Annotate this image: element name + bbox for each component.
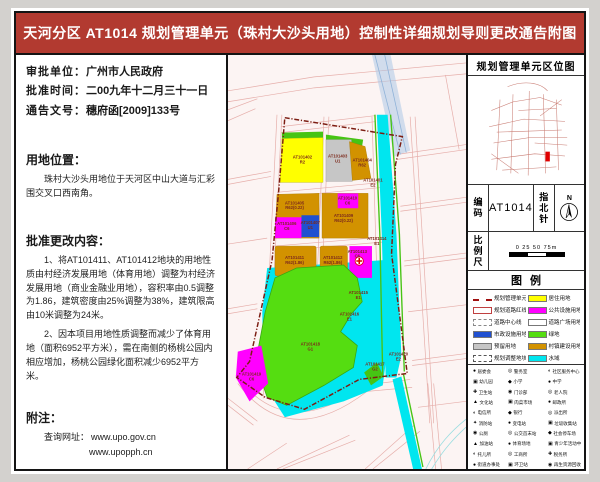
notes-heading: 附注： xyxy=(26,409,216,426)
location-block: 用地位置： 珠村大沙头用地位于天河区中山大道与汇彩围交叉口西南角。 xyxy=(26,151,216,206)
facility-legend-item: ● 中学 xyxy=(548,378,581,386)
facility-icon: ● xyxy=(473,463,476,468)
changes-paragraphs: 1、将AT101411、AT101412地块的用地性质由村经济发展用地（体育用地… xyxy=(26,254,216,384)
legend-road-centerline: 道路中心线 xyxy=(473,318,526,326)
legend-water: 水域 xyxy=(528,354,581,362)
facility-legend-item: ▲ 加油站 xyxy=(473,440,506,448)
facility-icon: ▣ xyxy=(508,400,513,405)
facility-icon: ● xyxy=(548,380,551,385)
legend-road-redline: 规划道路红线 xyxy=(473,306,526,314)
svg-text:E1: E1 xyxy=(356,295,362,300)
approval-line: 审批单位：广州市人民政府 xyxy=(26,63,216,82)
legend: 规划管理单元界线 居住用地 规划道路红线 公共设施用地 道路中心线 xyxy=(468,290,584,365)
svg-text:E2: E2 xyxy=(396,356,402,361)
facility-legend-item: ● 体育场地 xyxy=(508,440,546,448)
compass-icon xyxy=(559,202,579,222)
svg-text:C6: C6 xyxy=(249,376,255,381)
facility-legend-item: ◎ 公交首末站 xyxy=(508,430,546,438)
road-redline-symbol xyxy=(473,307,492,314)
facility-icon: ◆ xyxy=(548,431,552,436)
public-facility-swatch xyxy=(528,307,547,314)
svg-text:C6: C6 xyxy=(284,226,290,231)
plan-map-svg: AT101402R2 AT101403U1 AT101404R62 AT1014… xyxy=(228,55,466,469)
facility-icon: ◆ xyxy=(508,380,512,385)
village-swatch xyxy=(528,343,547,350)
svg-text:R62(1.86): R62(1.86) xyxy=(323,260,342,265)
residential-swatch xyxy=(528,295,547,302)
facility-legend-item: ● 街道办事处 xyxy=(473,461,506,469)
facility-legend-item: ▣ 环卫站 xyxy=(508,461,546,469)
facility-icon: ● xyxy=(548,400,551,405)
legend-boundary: 规划管理单元界线 xyxy=(473,294,526,302)
facility-legend-item: ▣ 青少年活动中心 xyxy=(548,440,581,448)
facility-icon: ◐ xyxy=(473,452,476,457)
query-url-line2: www.upopph.cn xyxy=(26,445,216,459)
svg-text:R62(1.86): R62(1.86) xyxy=(285,260,304,265)
facility-legend-item: ◆ 社会停车场 xyxy=(548,430,581,438)
change-paragraph: 1、将AT101411、AT101412地块的用地性质由村经济发展用地（体育用地… xyxy=(26,254,216,324)
code-label: 编码 xyxy=(468,185,489,231)
svg-text:G1: G1 xyxy=(307,347,313,352)
locator-map-svg xyxy=(474,78,578,182)
reserved-swatch xyxy=(473,343,492,350)
svg-text:E2: E2 xyxy=(370,182,376,187)
facility-icon: ▣ xyxy=(548,442,553,447)
facility-icon: ▣ xyxy=(473,380,478,385)
approval-line: 批准时间：二00九年十二月三十一日 xyxy=(26,82,216,101)
svg-text:R2: R2 xyxy=(300,159,306,164)
facility-icon: ▣ xyxy=(508,463,513,468)
notice-page: 天河分区 AT1014 规划管理单元（珠村大沙头用地）控制性详细规划导则更改通告… xyxy=(0,0,600,482)
facility-icon: ◎ xyxy=(548,390,552,395)
facility-icon: ● xyxy=(473,369,476,374)
title-banner: 天河分区 AT1014 规划管理单元（珠村大沙头用地）控制性详细规划导则更改通告… xyxy=(16,13,584,55)
legend-public-facility: 公共设施用地 xyxy=(528,306,581,314)
locator-map xyxy=(468,76,584,185)
facility-legend-item: ◎ 派出所 xyxy=(548,409,581,417)
legend-reserved: 预留用地 xyxy=(473,342,526,350)
white-mat: 天河分区 AT1014 规划管理单元（珠村大沙头用地）控制性详细规划导则更改通告… xyxy=(11,8,589,474)
svg-text:U1: U1 xyxy=(335,158,341,163)
query-url-2: www.upopph.cn xyxy=(89,447,153,457)
road-centerline-symbol xyxy=(473,319,492,326)
facility-icon: ◉ xyxy=(473,431,477,436)
svg-text:C6: C6 xyxy=(345,200,351,205)
content-row: 审批单位：广州市人民政府 批准时间：二00九年十二月三十一日 通告文号：穗府函[… xyxy=(16,55,584,469)
legend-adjust-range: 规划调整地块范围线 xyxy=(473,354,526,362)
scale-ticks: 0 25 50 75m xyxy=(516,245,558,251)
facility-icon: ◎ xyxy=(508,452,512,457)
legend-road-square: 道路广场用地 xyxy=(528,318,581,326)
legend-residential: 居住用地 xyxy=(528,294,581,302)
facility-legend-item: ✚ 税务所 xyxy=(548,451,581,459)
green-swatch xyxy=(528,331,547,338)
changes-block: 批准更改内容： 1、将AT101411、AT101412地块的用地性质由村经济发… xyxy=(26,232,216,389)
svg-text:R62(0.22): R62(0.22) xyxy=(285,205,304,210)
north-arrow: N xyxy=(555,185,584,231)
facility-icon: ▣ xyxy=(548,421,553,426)
facility-legend-item: ▣ 垃圾收集站 xyxy=(548,420,581,428)
facility-legend-item: ● 邮政所 xyxy=(548,399,581,407)
svg-text:U1: U1 xyxy=(308,225,314,230)
facility-legend-item: ◎ 老人院 xyxy=(548,389,581,397)
facility-legend-item: ◆ 银行 xyxy=(508,409,546,417)
svg-text:R62(0.22): R62(0.22) xyxy=(334,218,353,223)
facility-legend-item: ◐ 社区服务中心 xyxy=(548,368,581,376)
facility-legend-item: ◉ 门诊部 xyxy=(508,389,546,397)
facility-icon: ✦ xyxy=(473,421,477,426)
adjust-range-symbol xyxy=(473,355,492,362)
outer-frame: 天河分区 AT1014 规划管理单元（珠村大沙头用地）控制性详细规划导则更改通告… xyxy=(14,11,586,471)
scale-bar-box: 0 25 50 75m xyxy=(489,232,584,270)
locator-highlight-marker xyxy=(546,152,550,162)
facility-icon: ◎ xyxy=(548,411,552,416)
facility-icon: ◉ xyxy=(548,463,552,468)
road-square-swatch xyxy=(528,319,547,326)
facility-icon: ✚ xyxy=(473,390,477,395)
scale-bar xyxy=(509,252,565,257)
north-label: 指北针 xyxy=(534,185,555,231)
legend-green: 绿地 xyxy=(528,330,581,338)
notes-block: 附注： 查询网址：www.upo.gov.cn www.upopph.cn xyxy=(26,409,216,463)
facility-icon: ● xyxy=(508,421,511,426)
municipal-swatch xyxy=(473,331,492,338)
facility-legend-item: ✚ 卫生站 xyxy=(473,389,506,397)
change-paragraph: 2、因本项目用地性质调整而减少了体育用地（面积6952平方米），需在南侧的杨桃公… xyxy=(26,328,216,384)
water-swatch xyxy=(528,355,547,362)
code-row: 编码 AT1014 指北针 N xyxy=(468,185,584,232)
facility-legend-item: ◐ 电信所 xyxy=(473,409,506,417)
location-heading: 用地位置： xyxy=(26,151,216,168)
url-label: 查询网址： xyxy=(44,432,89,442)
facility-icon: ● xyxy=(508,442,511,447)
facility-legend-item: ▲ 文化站 xyxy=(473,399,506,407)
changes-heading: 批准更改内容： xyxy=(26,232,216,249)
legend-village: 村镇建设用地 xyxy=(528,342,581,350)
locator-title: 规划管理单元区位图 xyxy=(468,55,584,76)
svg-text:C6: C6 xyxy=(355,253,361,258)
facility-icon: ◎ xyxy=(508,431,512,436)
approval-line: 通告文号：穗府函[2009]133号 xyxy=(26,102,216,121)
facility-legend-item: ▣ 幼儿园 xyxy=(473,378,506,386)
facility-icon: ◉ xyxy=(508,390,512,395)
facility-legend-item: ◆ 小学 xyxy=(508,378,546,386)
facility-icon: ◐ xyxy=(473,411,476,416)
query-url-line1: 查询网址：www.upo.gov.cn xyxy=(26,430,216,444)
facility-icon: ▲ xyxy=(473,400,478,405)
legend-title: 图例 xyxy=(468,271,584,290)
legend-municipal: 市政设施用地 xyxy=(473,330,526,338)
map-info-panel: 规划管理单元区位图 xyxy=(466,55,584,469)
facility-legend-item: ◎ 工商所 xyxy=(508,451,546,459)
facility-legend-item: ◐ 托儿所 xyxy=(473,451,506,459)
facility-legend-item: ▣ 肉菜市场 xyxy=(508,399,546,407)
facility-icon: ✚ xyxy=(548,452,552,457)
plan-map: AT101402R2 AT101403U1 AT101404R62 AT1014… xyxy=(228,55,466,469)
svg-text:R62: R62 xyxy=(358,162,366,167)
svg-text:G2: G2 xyxy=(372,366,378,371)
facility-legend-item: ✦ 消防站 xyxy=(473,420,506,428)
boundary-line-symbol xyxy=(473,299,492,301)
info-panel: 审批单位：广州市人民政府 批准时间：二00九年十二月三十一日 通告文号：穗府函[… xyxy=(16,55,228,469)
approval-block: 审批单位：广州市人民政府 批准时间：二00九年十二月三十一日 通告文号：穗府函[… xyxy=(26,63,216,121)
facility-legend-item: ◎ 警务室 xyxy=(508,368,546,376)
facility-icon: ▲ xyxy=(473,442,478,447)
facility-legend-item: ● 变电站 xyxy=(508,420,546,428)
facility-legend-item: ◉ 公厕 xyxy=(473,430,506,438)
unit-code: AT1014 xyxy=(489,185,534,231)
page-title: 天河分区 AT1014 规划管理单元（珠村大沙头用地）控制性详细规划导则更改通告… xyxy=(23,23,577,43)
facility-legend-item: ◉ 再生资源回收点 xyxy=(548,461,581,469)
scale-row: 比例尺 0 25 50 75m xyxy=(468,232,584,271)
scale-label: 比例尺 xyxy=(468,232,489,270)
location-body: 珠村大沙头用地位于天河区中山大道与汇彩围交叉口西南角。 xyxy=(26,173,216,201)
facility-icon: ◆ xyxy=(508,411,512,416)
facility-icon: ◎ xyxy=(508,369,512,374)
facility-legend-item: ● 居委会 xyxy=(473,368,506,376)
svg-text:E1: E1 xyxy=(347,317,353,322)
facility-icon: ◐ xyxy=(548,369,551,374)
north-n: N xyxy=(567,195,572,202)
query-url-1: www.upo.gov.cn xyxy=(91,432,156,442)
facility-legend-grid: ● 居委会 ◎ 警务室 ◐ 社区服务中心 ▣ xyxy=(468,365,584,469)
svg-text:E1: E1 xyxy=(374,241,380,246)
